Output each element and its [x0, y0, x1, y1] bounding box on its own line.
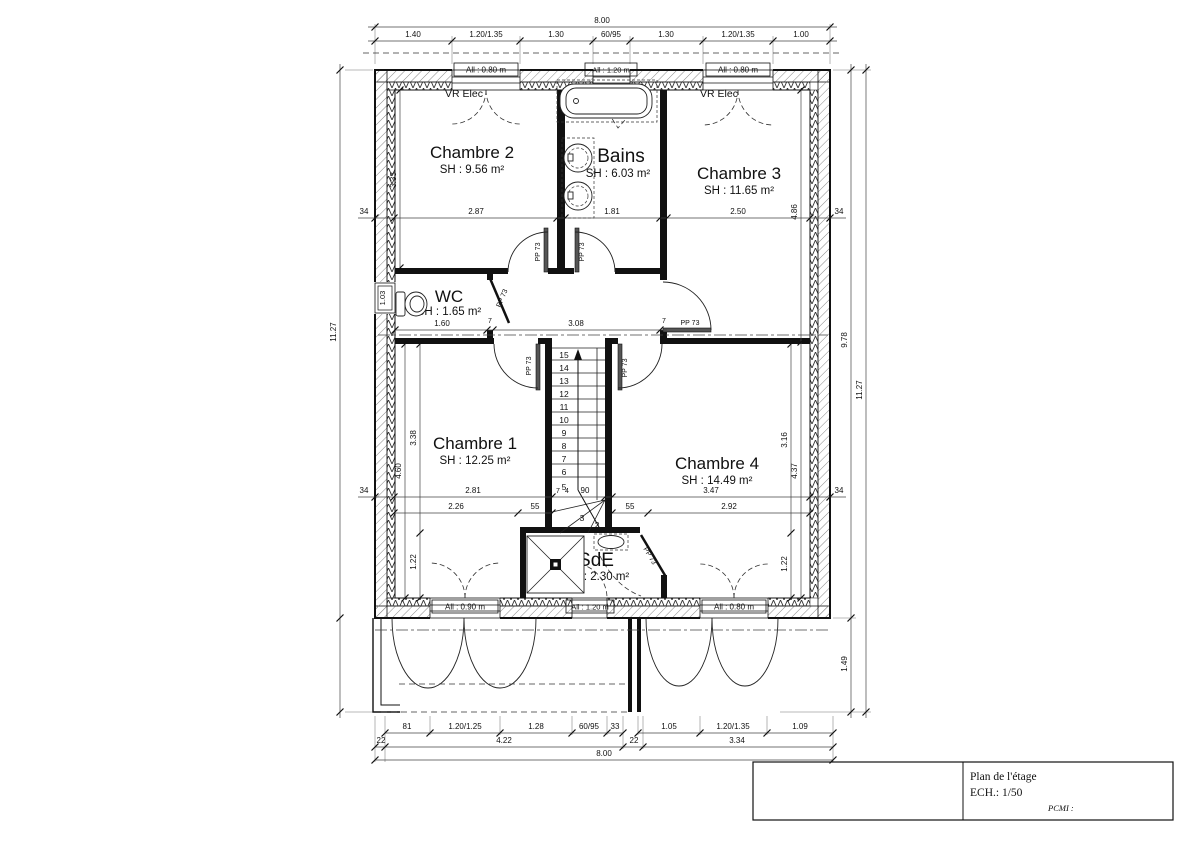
stair-step-12: 12	[559, 389, 569, 399]
shower	[527, 536, 584, 593]
door-chambre4-label: PP 73	[622, 358, 629, 377]
dim-wc-width: 1.60	[434, 319, 450, 328]
dim-right-outer: 11.27	[855, 380, 864, 400]
dim-c3-height: 4.86	[790, 204, 799, 220]
door-chambre3: PP 73	[663, 282, 711, 332]
dim-c1-height: 3.38	[409, 430, 418, 446]
door-chambre2: PP 73	[508, 228, 548, 272]
dim-bot2-22l: 22	[377, 736, 386, 745]
floor-plan-page: 8.00 1.40 1.20/1.35 1.30 60/95 1.30 1.20…	[0, 0, 1200, 849]
room-chambre4-name: Chambre 4	[675, 454, 759, 473]
door-chambre1: PP 73	[494, 344, 540, 390]
vr-elec-right: VR Elec	[700, 88, 738, 100]
window-top-center-label: All : 1.20 m	[592, 66, 630, 75]
dim-bot1-120135: 1.20/1.35	[716, 722, 750, 731]
room-chambre3-name: Chambre 3	[697, 164, 781, 183]
dim-7-wc: 7	[488, 318, 492, 325]
dim-low2-55l: 55	[531, 502, 540, 511]
dim-low-7b: 7	[607, 488, 611, 495]
window-bottom-left-label: All : 0.90 m	[445, 603, 485, 612]
window-bottom-right-label: All : 0.80 m	[714, 603, 754, 612]
window-left-wc-label: 1.03	[378, 291, 387, 306]
window-top-left-label: All : 0.80 m	[466, 66, 506, 75]
dim-mid-34r: 34	[835, 207, 844, 216]
dim-c4-lower: 1.22	[780, 556, 789, 572]
dim-top-2: 1.20/1.35	[469, 30, 503, 39]
title-block-scale: ECH.: 1/50	[970, 787, 1023, 799]
dim-low-281: 2.81	[465, 486, 481, 495]
dimension-top: 8.00 1.40 1.20/1.35 1.30 60/95 1.30 1.20…	[363, 16, 843, 64]
dim-c4-height: 3.16	[780, 432, 789, 448]
door-wc-label: PP 73	[496, 288, 510, 308]
dim-bot1-105: 1.05	[661, 722, 677, 731]
dim-bot1-6095: 60/95	[579, 722, 600, 731]
porch-center-post	[628, 618, 632, 712]
vr-elec-left: VR Elec	[445, 88, 483, 100]
stair-step-15: 15	[559, 350, 569, 360]
dim-stair-width: 90	[581, 486, 590, 495]
staircase: 15 14 13 12 11 10 9 8 7 6 5 3 2	[552, 348, 605, 533]
title-block-title: Plan de l'étage	[970, 771, 1037, 783]
dim-top-1: 1.40	[405, 30, 421, 39]
door-chambre1-label: PP 73	[526, 356, 533, 375]
dim-low2-55r: 55	[626, 502, 635, 511]
dim-mid-181: 1.81	[604, 207, 620, 216]
dim-low-7a: 7	[556, 488, 560, 495]
dim-hall-width: 3.08	[568, 319, 584, 328]
door-bains: PP 73	[575, 228, 615, 272]
floor-plan-drawing: 8.00 1.40 1.20/1.35 1.30 60/95 1.30 1.20…	[0, 0, 1200, 849]
stair-step-6: 6	[562, 467, 567, 477]
dim-bot2-334: 3.34	[729, 736, 745, 745]
window-bottom-right: All : 0.80 m	[700, 564, 768, 619]
door-chambre4: PP 73	[618, 344, 662, 390]
dim-top-7: 1.00	[793, 30, 809, 39]
dim-mid-287: 2.87	[468, 207, 484, 216]
toilet	[396, 292, 427, 316]
dim-top-6: 1.20/1.35	[721, 30, 755, 39]
room-chambre3-area: SH : 11.65 m²	[704, 185, 774, 197]
room-bains-name: Bains	[597, 146, 645, 167]
dim-left-total: 11.27	[329, 322, 338, 342]
window-left-wc: 1.03	[373, 282, 396, 314]
stair-step-10: 10	[559, 415, 569, 425]
stair-step-7: 7	[562, 454, 567, 464]
stair-step-8: 8	[562, 441, 567, 451]
stair-step-14: 14	[559, 363, 569, 373]
dim-bot2-22r: 22	[630, 736, 639, 745]
dim-top-5: 1.30	[658, 30, 674, 39]
room-chambre1-name: Chambre 1	[433, 434, 517, 453]
window-bottom-left: All : 0.90 m	[430, 563, 500, 619]
window-bottom-center-label: All : 1.20 m	[571, 603, 609, 612]
dim-mid-7b: 7	[662, 206, 666, 213]
window-top-right-label: All : 0.80 m	[718, 66, 758, 75]
door-wc: PP 73	[489, 276, 510, 323]
stair-winder-3: 3	[580, 513, 585, 523]
dim-low2-226: 2.26	[448, 502, 464, 511]
dim-bot1-120125: 1.20/1.25	[448, 722, 482, 731]
dim-bot1-109: 1.09	[792, 722, 808, 731]
dim-bot1-128: 1.28	[528, 722, 544, 731]
stair-step-9: 9	[562, 428, 567, 438]
dim-mid-34l: 34	[360, 207, 369, 216]
door-chambre3-label: PP 73	[681, 320, 700, 327]
dim-overhang-depth: 1.49	[840, 656, 849, 672]
dimension-bottom: 81 1.20/1.25 1.28 60/95 33 1.05 1.20/1.3…	[372, 716, 837, 764]
title-block-pcmi: PCMI :	[1047, 803, 1074, 813]
porch-left-post	[373, 618, 400, 712]
title-block: Plan de l'étage ECH.: 1/50 PCMI :	[753, 762, 1173, 820]
stair-step-13: 13	[559, 376, 569, 386]
door-bains-label: PP 73	[579, 242, 586, 261]
room-wc-name: WC	[435, 287, 463, 306]
dim-c2-height: 3.33	[389, 172, 398, 188]
dim-bot2-422: 4.22	[496, 736, 512, 745]
dim-low2-292: 2.92	[721, 502, 737, 511]
bathtub	[557, 80, 657, 122]
dim-bot1-81: 81	[403, 722, 412, 731]
dim-top-4: 60/95	[601, 30, 622, 39]
stair-step-11: 11	[560, 402, 569, 412]
sde-sink	[594, 534, 628, 550]
dim-bot1-33: 33	[611, 722, 620, 731]
dim-low-347: 3.47	[703, 486, 719, 495]
dim-bottom-total: 8.00	[596, 749, 612, 758]
room-bains-area: SH : 6.03 m²	[586, 168, 651, 180]
ground-floor-opening-arc	[392, 618, 464, 688]
dim-c1-lower: 1.22	[409, 554, 418, 570]
dim-right-inner: 9.78	[840, 332, 849, 348]
dim-top-3: 1.30	[548, 30, 564, 39]
dim-c1-total: 4.60	[394, 463, 403, 479]
dim-low-34l: 34	[360, 486, 369, 495]
dim-top-total: 8.00	[594, 16, 610, 25]
dim-7-hall: 7	[662, 318, 666, 325]
lower-overhang	[373, 618, 830, 712]
door-chambre2-label: PP 73	[535, 242, 542, 261]
dim-low-4: 4	[565, 488, 569, 495]
dim-low-34r: 34	[835, 486, 844, 495]
room-chambre2-name: Chambre 2	[430, 143, 514, 162]
room-chambre2-area: SH : 9.56 m²	[440, 164, 505, 176]
room-chambre1-area: SH : 12.25 m²	[440, 455, 511, 467]
dim-mid-250: 2.50	[730, 207, 746, 216]
dim-mid-7a: 7	[558, 206, 562, 213]
